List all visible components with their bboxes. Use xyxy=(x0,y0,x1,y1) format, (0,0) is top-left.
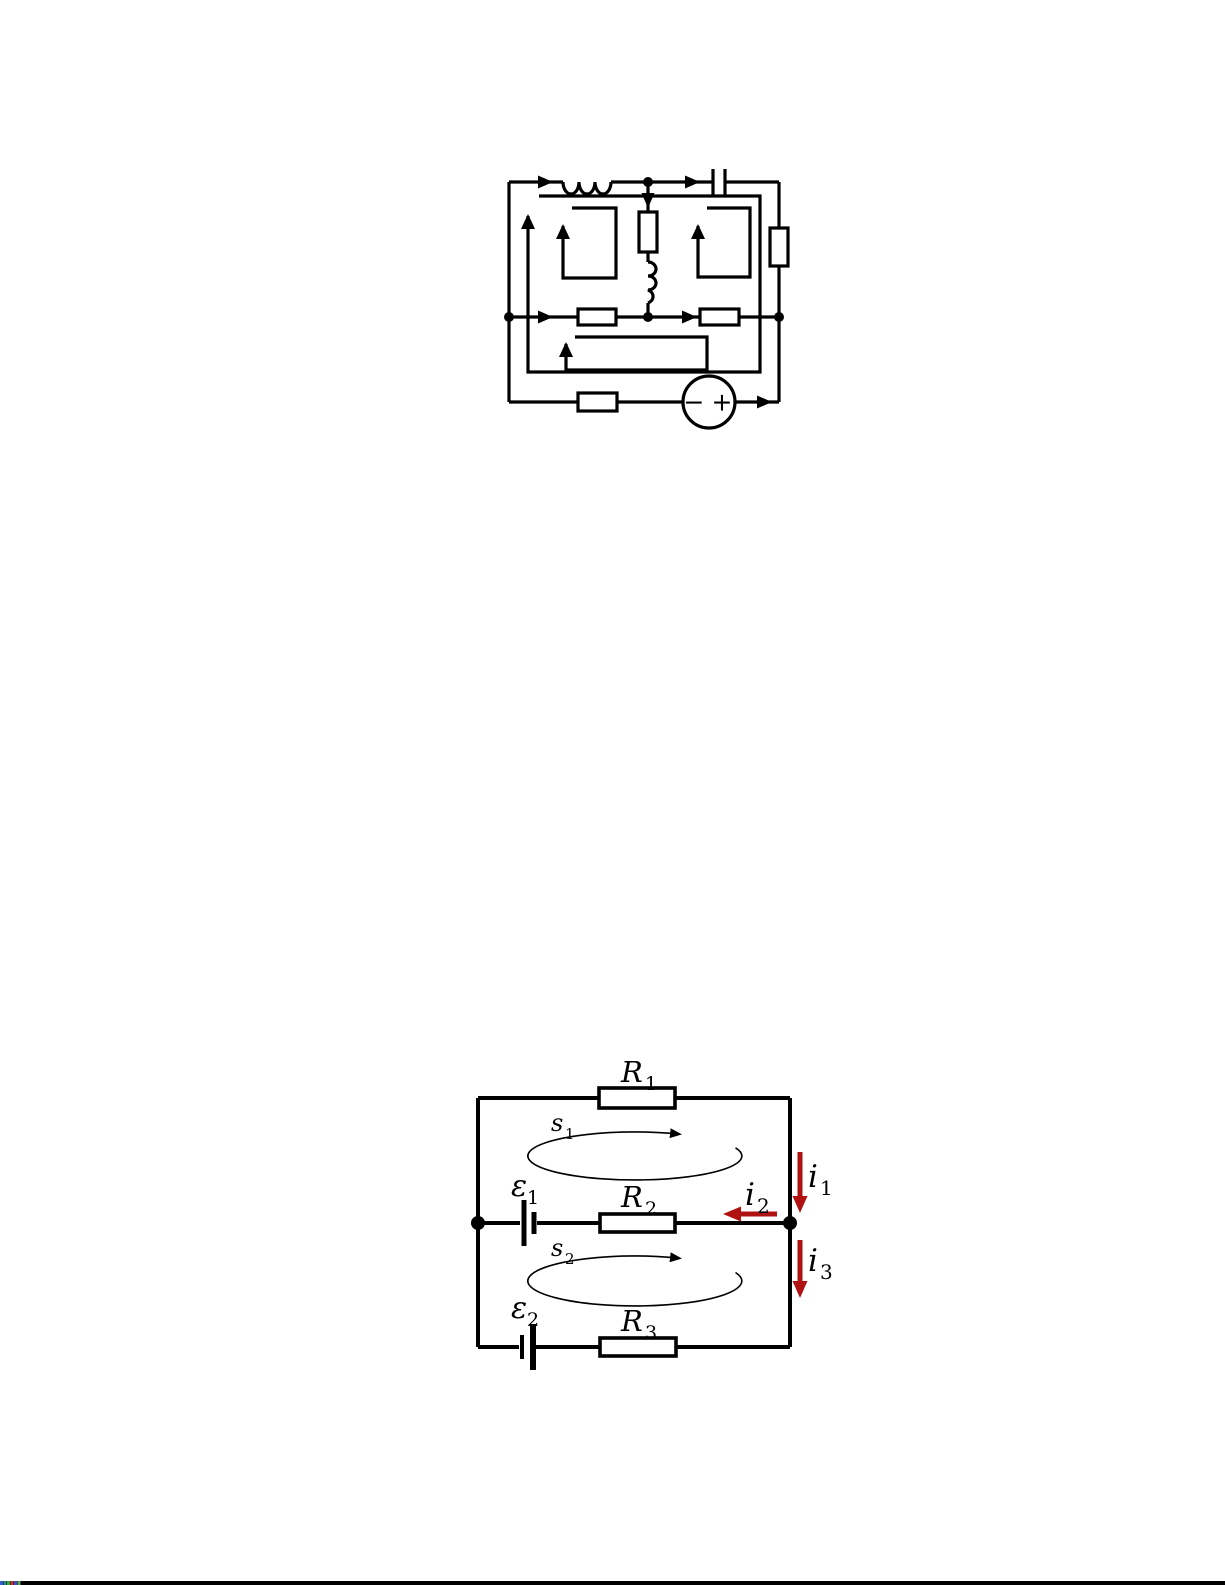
label-i3-subscript: 3 xyxy=(820,1260,833,1284)
label-R2-subscript: 2 xyxy=(645,1198,657,1220)
bottom-bar-artifact xyxy=(7,1581,10,1585)
current-arrowhead-i1 xyxy=(793,1196,808,1213)
label-i1-subscript: 1 xyxy=(820,1176,833,1200)
label-i2-subscript: 2 xyxy=(757,1194,770,1218)
junction-dot-left xyxy=(471,1216,485,1230)
mesh-loop-arrow-top-left xyxy=(563,208,616,278)
bottom-bar-artifact xyxy=(11,1581,14,1585)
bottom-bar xyxy=(0,1581,1225,1585)
current-arrowhead-branch-down xyxy=(642,193,655,208)
current-arrowhead-bottom xyxy=(757,396,772,409)
resistor-symbol-middle xyxy=(639,212,657,252)
inductor-symbol-middle xyxy=(648,262,656,303)
label-emf2-subscript: 2 xyxy=(527,1309,539,1331)
voltage-source-plus: + xyxy=(712,388,733,417)
label-emf1-subscript: 1 xyxy=(527,1187,539,1209)
label-i1: i xyxy=(808,1159,818,1195)
junction-dot xyxy=(774,312,784,322)
bottom-bar-artifact xyxy=(0,1581,3,1585)
current-arrowhead-i3 xyxy=(793,1281,808,1298)
bottom-bar-artifact xyxy=(4,1581,7,1585)
voltage-source-minus: − xyxy=(684,388,705,417)
mesh-loop-arrow-top-right xyxy=(698,208,750,277)
bottom-edge-bar xyxy=(0,1581,1225,1585)
junction-dot-right xyxy=(783,1216,797,1230)
current-arrowhead-top-left xyxy=(538,176,553,189)
current-arrowhead-mid-right xyxy=(682,311,697,324)
label-R1: R xyxy=(620,1055,643,1089)
capacitor-symbol xyxy=(713,169,725,196)
resistor-symbol-mid-right xyxy=(700,309,739,325)
resistor-R1-symbol xyxy=(599,1088,675,1108)
label-s2: s xyxy=(551,1234,563,1262)
label-i2: i xyxy=(745,1177,755,1213)
label-R3: R xyxy=(620,1304,643,1338)
document-page: − + xyxy=(0,0,1225,1585)
junction-dot xyxy=(504,312,514,322)
label-s2-subscript: 2 xyxy=(565,1250,575,1268)
mesh-loop-arrow-bottom xyxy=(566,337,707,370)
bottom-bar-artifact xyxy=(18,1581,21,1585)
inductor-symbol-top xyxy=(563,182,611,194)
label-s1: s xyxy=(551,1109,563,1137)
junction-dot xyxy=(643,177,653,187)
label-emf1: ε xyxy=(511,1169,527,1204)
current-arrowhead-mid-left xyxy=(538,311,553,324)
mesh-ellipse-s1 xyxy=(528,1132,742,1180)
current-arrowhead-i2 xyxy=(723,1207,741,1222)
resistor-symbol-mid-left xyxy=(578,309,616,325)
resistor-symbol-bottom xyxy=(578,393,617,411)
circuit-diagram-lower: R 1 R 2 R 3 s 1 s 2 ε 1 ε 2 i 1 i 2 i 3 xyxy=(471,1055,833,1370)
label-s1-subscript: 1 xyxy=(565,1125,575,1143)
label-R3-subscript: 3 xyxy=(645,1322,657,1344)
current-arrowhead-top-right xyxy=(685,176,700,189)
resistor-R3-symbol xyxy=(600,1338,676,1356)
resistor-symbol-right xyxy=(770,228,788,266)
bottom-bar-artifact xyxy=(14,1581,17,1585)
resistor-R2-symbol xyxy=(600,1214,675,1232)
label-R1-subscript: 1 xyxy=(645,1073,657,1095)
label-i3: i xyxy=(808,1243,818,1279)
junction-dot xyxy=(643,312,653,322)
mesh-ellipse-s2 xyxy=(528,1256,742,1306)
label-emf2: ε xyxy=(511,1291,527,1326)
label-R2: R xyxy=(620,1180,643,1214)
circuit-diagram-upper: − + xyxy=(504,169,788,428)
